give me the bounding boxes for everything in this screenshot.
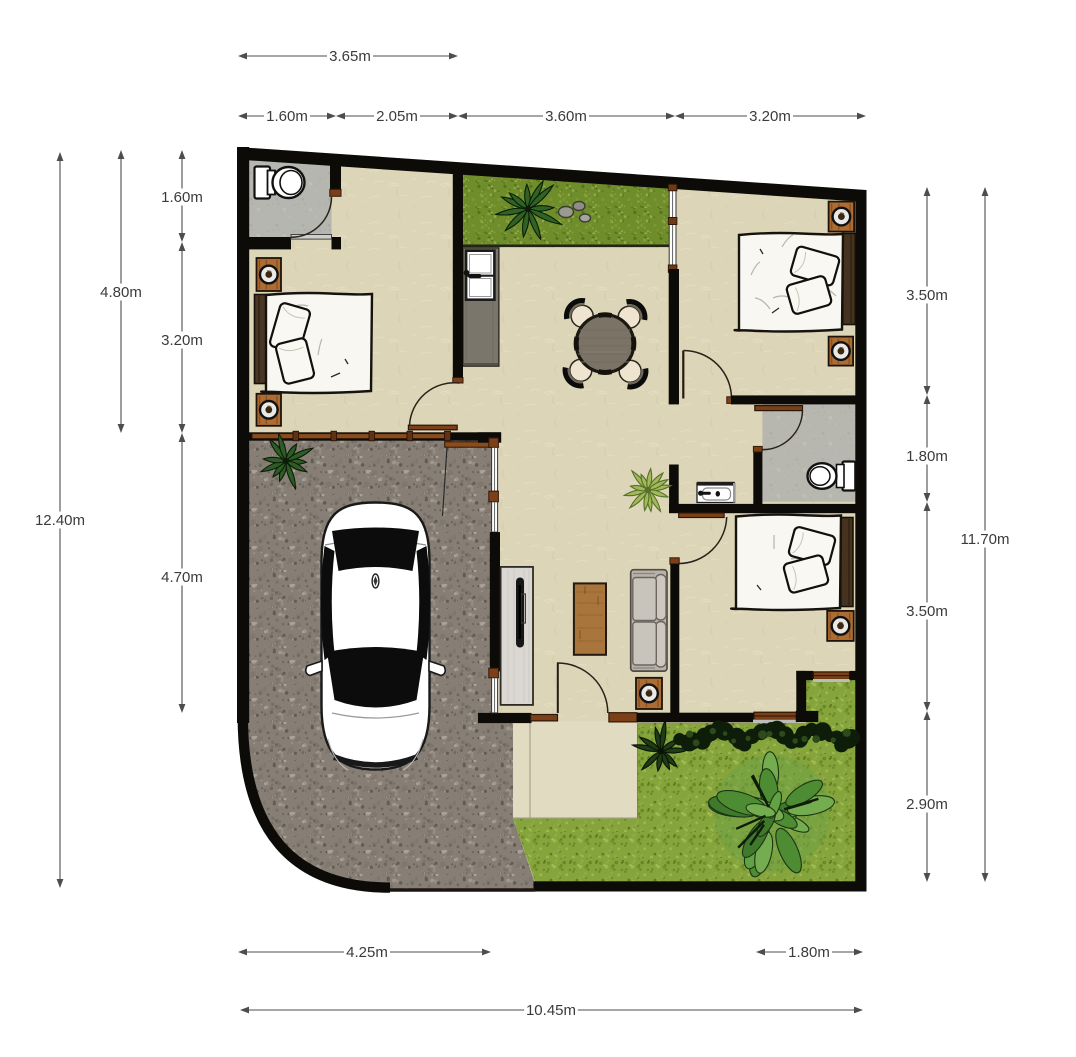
svg-text:11.70m: 11.70m [961, 531, 1010, 548]
svg-text:3.20m: 3.20m [749, 108, 791, 125]
svg-text:4.25m: 4.25m [346, 944, 388, 961]
svg-text:3.50m: 3.50m [906, 287, 948, 304]
svg-text:4.80m: 4.80m [100, 284, 142, 301]
svg-text:2.90m: 2.90m [906, 796, 948, 813]
svg-text:3.65m: 3.65m [329, 48, 371, 65]
svg-text:1.80m: 1.80m [906, 448, 948, 465]
svg-text:2.05m: 2.05m [376, 108, 418, 125]
svg-text:1.60m: 1.60m [266, 108, 308, 125]
svg-text:12.40m: 12.40m [35, 512, 85, 529]
svg-text:3.20m: 3.20m [161, 332, 203, 349]
svg-text:1.60m: 1.60m [161, 189, 203, 206]
svg-text:1.80m: 1.80m [788, 944, 830, 961]
svg-text:4.70m: 4.70m [161, 569, 203, 586]
svg-text:3.60m: 3.60m [545, 108, 587, 125]
svg-text:10.45m: 10.45m [526, 1002, 576, 1019]
svg-text:3.50m: 3.50m [906, 603, 948, 620]
